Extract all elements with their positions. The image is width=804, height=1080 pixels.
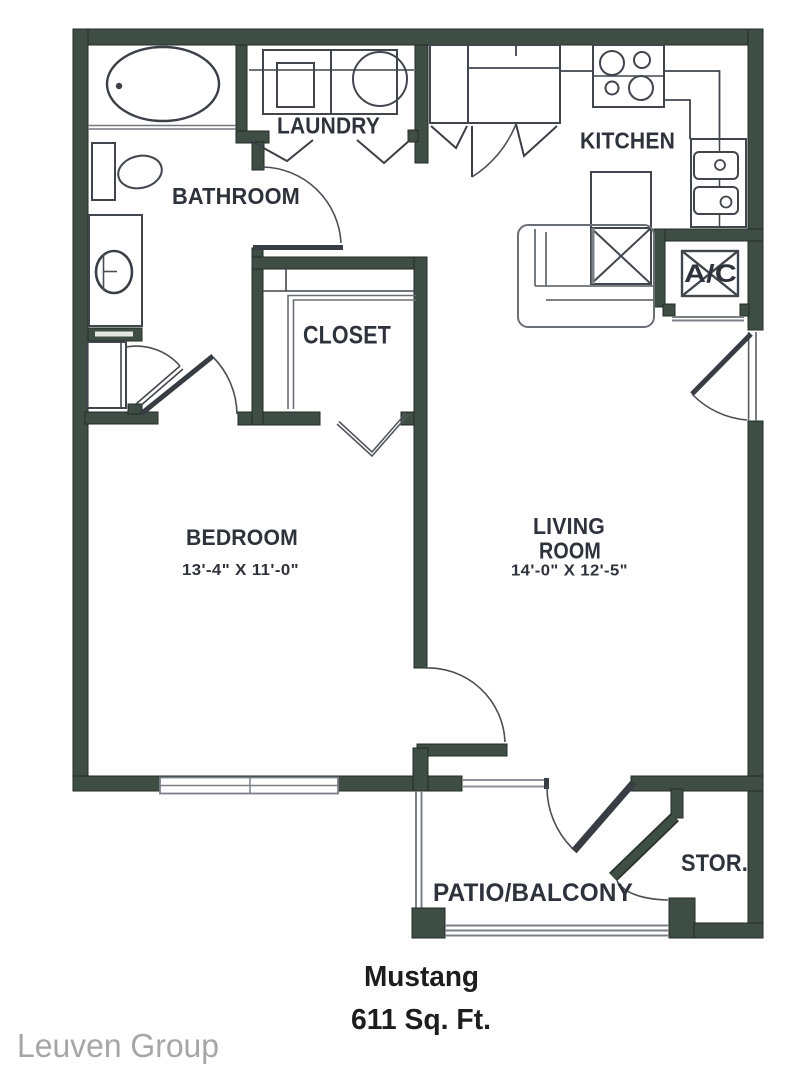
svg-text:CLOSET: CLOSET [303,322,391,350]
svg-text:KITCHEN: KITCHEN [580,128,675,154]
svg-text:BATHROOM: BATHROOM [172,183,300,209]
svg-text:A/C: A/C [684,260,737,288]
svg-text:ROOM: ROOM [539,538,601,564]
svg-text:14'-0" X 12'-5": 14'-0" X 12'-5" [511,563,628,580]
svg-text:BEDROOM: BEDROOM [186,525,298,550]
svg-text:LAUNDRY: LAUNDRY [277,113,380,139]
svg-text:PATIO/BALCONY: PATIO/BALCONY [433,879,633,907]
svg-text:611 Sq. Ft.: 611 Sq. Ft. [351,1004,491,1036]
svg-text:13'-4" X 11'-0": 13'-4" X 11'-0" [182,562,299,579]
svg-text:Mustang: Mustang [364,961,479,993]
svg-text:STOR.: STOR. [681,850,748,877]
svg-text:LIVING: LIVING [533,513,605,539]
svg-text:Leuven Group: Leuven Group [17,1027,219,1064]
